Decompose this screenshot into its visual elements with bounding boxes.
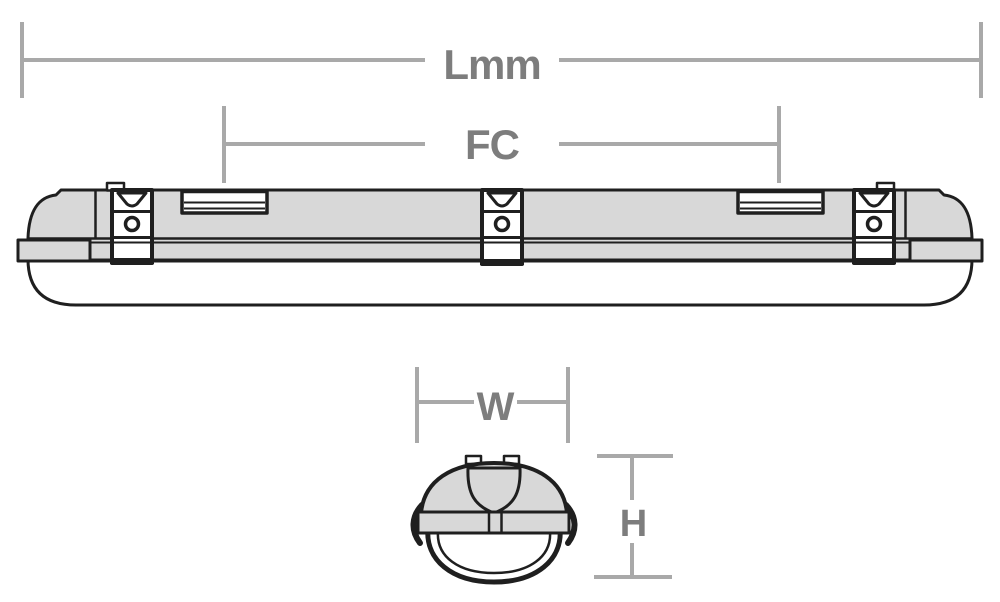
vent-grille-right	[738, 192, 823, 214]
height-line-bottom-segment	[630, 543, 634, 577]
length-line-left-segment	[22, 58, 425, 62]
clip-screw-hole	[126, 218, 139, 231]
vent-grille-left	[182, 192, 267, 214]
dimension-diagram: Lmm FC W H	[0, 0, 1000, 602]
endcap-latch-right	[910, 240, 982, 261]
end-view	[413, 456, 574, 582]
width-tick-right	[566, 367, 570, 443]
length-line-right-segment	[559, 58, 983, 62]
fc-line-right-segment	[559, 142, 779, 146]
height-tick-top	[597, 454, 673, 458]
height-line-top-segment	[630, 458, 634, 500]
mounting-clip-right	[852, 183, 896, 263]
clip-screw-hole	[496, 218, 509, 231]
fc-line-left-segment	[224, 142, 425, 146]
side-view	[18, 183, 982, 305]
width-tick-left	[415, 367, 419, 443]
clip-screw-hole	[868, 218, 881, 231]
luminaire-drawing	[0, 0, 1000, 602]
gasket-band	[418, 512, 569, 533]
mounting-clip-left	[107, 183, 154, 263]
length-dimension-label: Lmm	[425, 44, 559, 86]
fixing-centres-dimension-label: FC	[425, 124, 559, 166]
height-dimension-label: H	[611, 505, 655, 543]
mounting-clip-center	[480, 190, 524, 264]
endcap-latch-left	[18, 240, 90, 261]
width-dimension-label: W	[455, 387, 535, 427]
